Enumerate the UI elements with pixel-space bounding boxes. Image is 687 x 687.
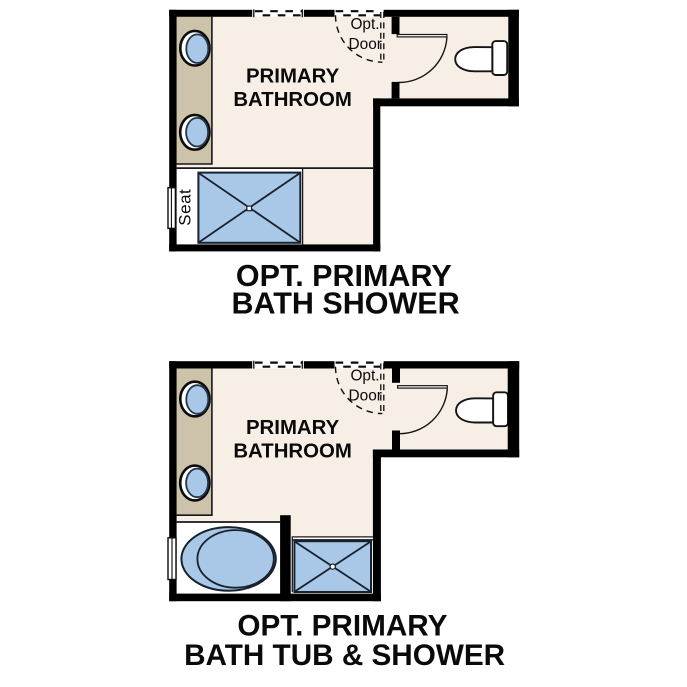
svg-text:PRIMARY: PRIMARY	[246, 417, 340, 439]
svg-text:Door: Door	[349, 36, 382, 53]
svg-text:BATHROOM: BATHROOM	[233, 89, 352, 111]
svg-text:BATH SHOWER: BATH SHOWER	[232, 286, 460, 320]
svg-text:Opt.: Opt.	[350, 368, 379, 385]
svg-text:Door: Door	[349, 387, 382, 404]
svg-text:OPT. PRIMARY: OPT. PRIMARY	[237, 609, 447, 642]
svg-text:Seat: Seat	[176, 189, 195, 226]
svg-text:Opt.: Opt.	[350, 16, 379, 33]
svg-text:PRIMARY: PRIMARY	[246, 66, 340, 88]
svg-text:BATHROOM: BATHROOM	[233, 441, 352, 463]
svg-text:BATH TUB & SHOWER: BATH TUB & SHOWER	[184, 639, 505, 672]
